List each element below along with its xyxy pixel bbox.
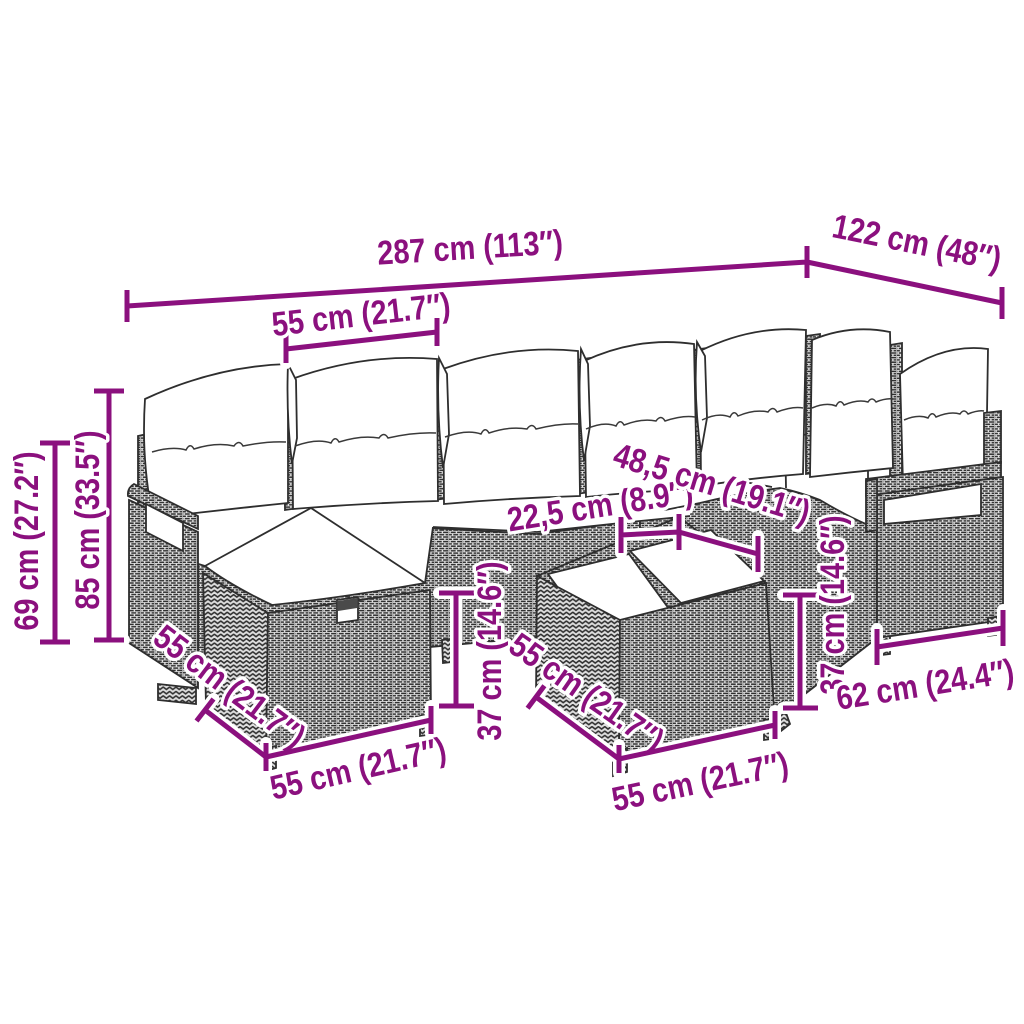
svg-text:69 cm (27.2″): 69 cm (27.2″)	[7, 451, 46, 630]
svg-text:37 cm (14.6″): 37 cm (14.6″)	[813, 515, 852, 694]
svg-text:85 cm (33.5″): 85 cm (33.5″)	[68, 430, 107, 609]
svg-text:37 cm (14.6″): 37 cm (14.6″)	[470, 561, 509, 740]
